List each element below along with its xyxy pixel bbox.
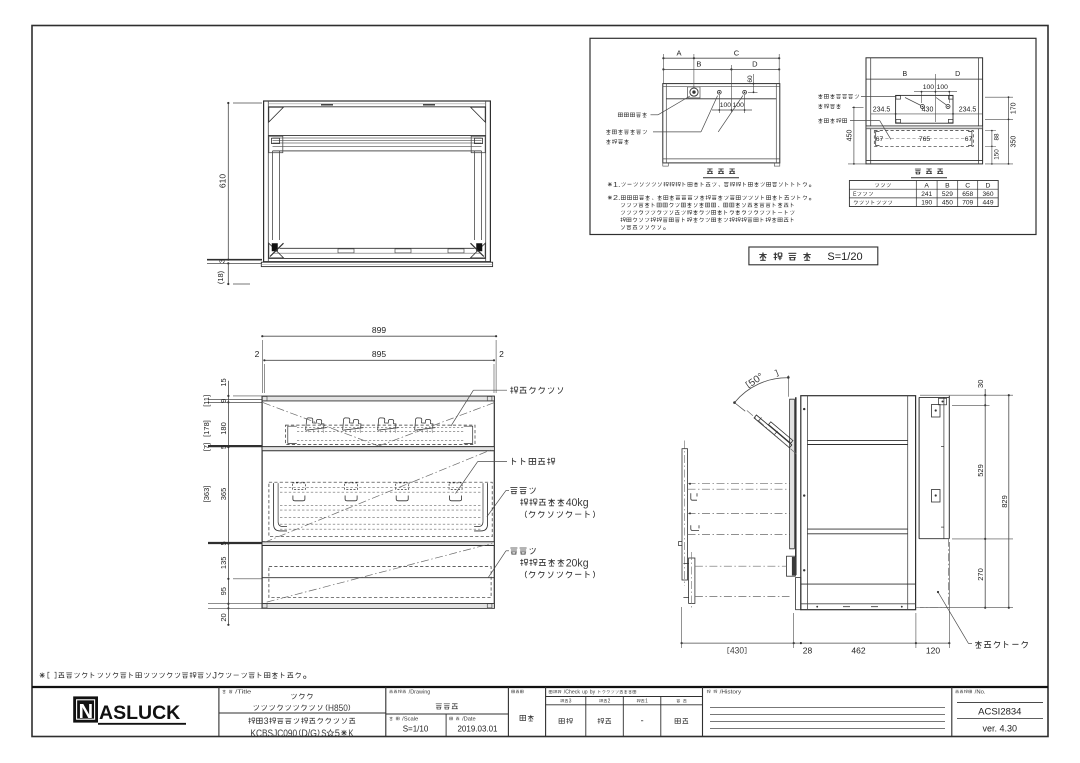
svg-text:350: 350 xyxy=(1011,136,1018,148)
svg-text:H850: H850 xyxy=(328,703,348,713)
svg-text:3: 3 xyxy=(569,699,572,705)
svg-text:B: B xyxy=(945,182,950,189)
svg-text:28: 28 xyxy=(803,646,813,656)
svg-text:by: by xyxy=(590,690,596,696)
svg-text:A: A xyxy=(924,182,929,189)
svg-text:60: 60 xyxy=(747,75,754,83)
svg-text:ASLUCK: ASLUCK xyxy=(99,702,180,724)
svg-text:2019.03.01: 2019.03.01 xyxy=(457,725,498,734)
svg-text:/Title: /Title xyxy=(235,689,251,695)
svg-text:234.5: 234.5 xyxy=(873,107,891,114)
svg-text:N: N xyxy=(79,701,93,723)
svg-text:5: 5 xyxy=(219,541,228,545)
svg-text:610: 610 xyxy=(217,174,227,188)
svg-text:2.: 2. xyxy=(613,195,621,202)
svg-text:234.5: 234.5 xyxy=(959,107,977,114)
svg-text:J: J xyxy=(212,671,217,681)
svg-text:/Check: /Check xyxy=(564,690,581,696)
svg-text:S: S xyxy=(321,728,327,739)
svg-text:D/G: D/G xyxy=(301,728,317,739)
svg-text:67: 67 xyxy=(965,136,973,143)
svg-text:KCBSJC090: KCBSJC090 xyxy=(250,728,297,739)
svg-text:449: 449 xyxy=(982,200,993,207)
svg-text:529: 529 xyxy=(942,191,953,198)
svg-text:170: 170 xyxy=(1011,102,1018,114)
svg-text:[363]: [363] xyxy=(202,486,211,503)
svg-text:5: 5 xyxy=(219,445,228,449)
svg-text:B: B xyxy=(902,71,907,78)
svg-text:100: 100 xyxy=(923,84,935,91)
svg-text:765: 765 xyxy=(919,136,931,143)
svg-text:120: 120 xyxy=(926,646,940,656)
svg-text:40kg: 40kg xyxy=(566,497,589,509)
svg-text:K: K xyxy=(348,728,354,739)
svg-text:360: 360 xyxy=(982,191,993,198)
svg-text:1: 1 xyxy=(645,699,648,705)
svg-text:462: 462 xyxy=(851,646,865,656)
svg-text:365: 365 xyxy=(219,488,228,501)
svg-text:/No.: /No. xyxy=(975,689,986,695)
svg-text:88: 88 xyxy=(994,133,1001,141)
svg-text:up: up xyxy=(582,690,588,696)
svg-text:829: 829 xyxy=(1000,495,1009,508)
svg-text:241: 241 xyxy=(921,191,932,198)
svg-text:190: 190 xyxy=(921,200,932,207)
svg-text:[7]: [7] xyxy=(202,443,211,451)
svg-text:20: 20 xyxy=(219,613,228,621)
svg-text:529: 529 xyxy=(976,464,985,477)
svg-text:1.: 1. xyxy=(613,182,621,189)
svg-text:ACSI2834: ACSI2834 xyxy=(978,707,1021,718)
svg-text:450: 450 xyxy=(847,130,854,142)
svg-text:15: 15 xyxy=(219,378,228,386)
svg-text:2: 2 xyxy=(608,699,611,705)
svg-text:2: 2 xyxy=(499,349,504,359)
svg-text:-: - xyxy=(641,716,644,726)
svg-text:270: 270 xyxy=(976,568,985,581)
svg-text:100: 100 xyxy=(720,102,732,109)
svg-text:[11]: [11] xyxy=(202,395,211,407)
svg-text:E: E xyxy=(853,191,857,198)
svg-text:/Drawing: /Drawing xyxy=(409,689,431,695)
svg-text:[178]: [178] xyxy=(202,420,211,437)
svg-text:3: 3 xyxy=(218,259,227,263)
svg-text:C: C xyxy=(734,48,740,57)
svg-text:430: 430 xyxy=(922,107,934,114)
svg-text:B: B xyxy=(696,60,701,69)
svg-text:ver. 4.30: ver. 4.30 xyxy=(983,724,1018,734)
svg-text:709: 709 xyxy=(962,200,973,207)
svg-text:20kg: 20kg xyxy=(566,558,589,570)
svg-text:430: 430 xyxy=(730,646,744,656)
svg-text:899: 899 xyxy=(372,325,386,335)
svg-text:450: 450 xyxy=(942,200,953,207)
svg-text:5: 5 xyxy=(335,728,341,739)
svg-text:95: 95 xyxy=(219,587,228,595)
svg-text:180: 180 xyxy=(219,422,228,435)
svg-text:D: D xyxy=(955,71,960,78)
svg-text:67: 67 xyxy=(876,136,884,143)
svg-text:/Date: /Date xyxy=(462,716,476,722)
svg-text:C: C xyxy=(965,182,970,189)
svg-text:D: D xyxy=(986,182,991,189)
svg-text:(18): (18) xyxy=(216,270,225,284)
svg-text:/History: /History xyxy=(720,689,742,695)
svg-text:100: 100 xyxy=(937,84,949,91)
svg-text:S=1/10: S=1/10 xyxy=(403,725,429,734)
svg-text:895: 895 xyxy=(372,349,386,359)
svg-text:/Scale: /Scale xyxy=(402,716,418,722)
svg-text:3: 3 xyxy=(264,716,269,726)
svg-text:A: A xyxy=(676,48,681,57)
svg-text:135: 135 xyxy=(219,557,228,570)
svg-text:30: 30 xyxy=(976,380,985,388)
svg-text:S=1/20: S=1/20 xyxy=(827,251,862,263)
svg-text:9: 9 xyxy=(219,399,228,403)
svg-text:658: 658 xyxy=(962,191,973,198)
svg-text:2: 2 xyxy=(255,349,260,359)
svg-text:150: 150 xyxy=(994,149,1001,160)
svg-text:D: D xyxy=(752,60,758,69)
